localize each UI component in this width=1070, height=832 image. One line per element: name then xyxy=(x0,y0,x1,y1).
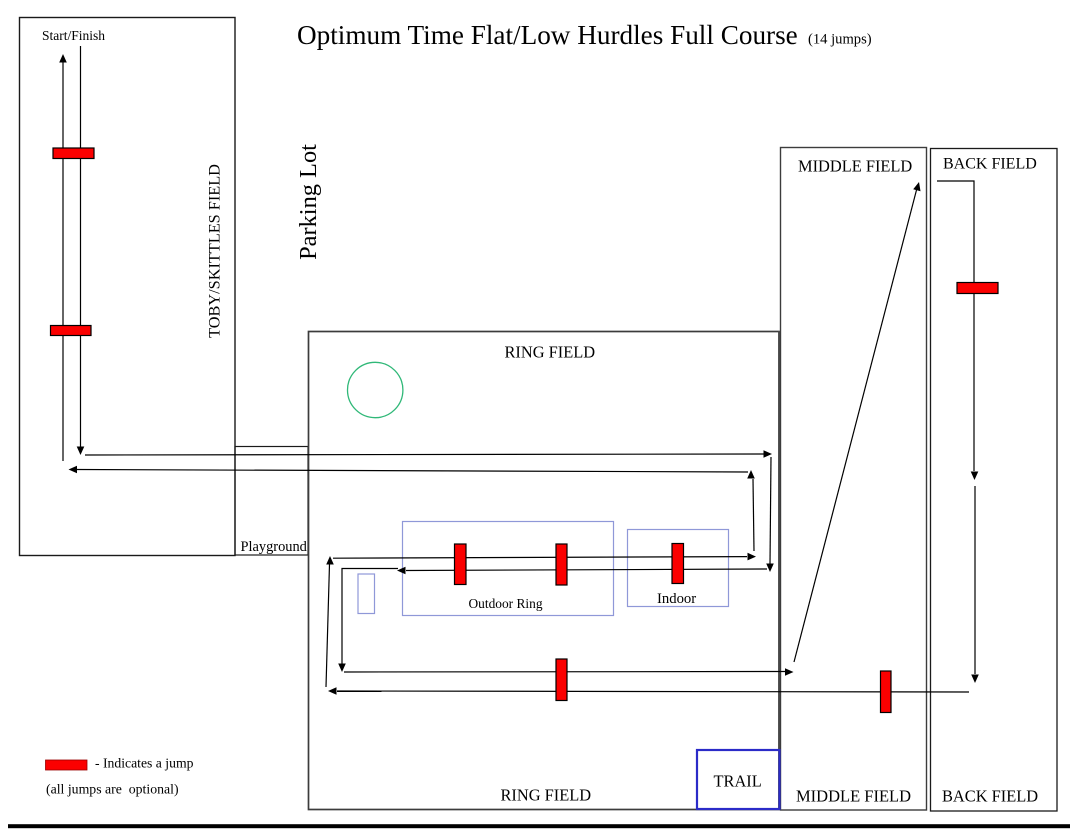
svg-text:Playground: Playground xyxy=(241,539,308,555)
svg-text:MIDDLE FIELD: MIDDLE FIELD xyxy=(798,157,912,176)
svg-text:Parking Lot: Parking Lot xyxy=(295,144,322,260)
svg-text:Start/Finish: Start/Finish xyxy=(42,28,105,43)
svg-text:(14 jumps): (14 jumps) xyxy=(808,32,872,48)
svg-text:- Indicates a jump: - Indicates a jump xyxy=(95,756,194,771)
svg-text:TRAIL: TRAIL xyxy=(714,772,762,791)
svg-text:TOBY/SKITTLES FIELD: TOBY/SKITTLES FIELD xyxy=(204,164,223,338)
svg-text:RING FIELD: RING FIELD xyxy=(505,343,596,362)
svg-text:Outdoor Ring: Outdoor Ring xyxy=(469,596,543,611)
svg-text:Indoor: Indoor xyxy=(657,591,696,607)
svg-text:Optimum Time Flat/Low Hurdles: Optimum Time Flat/Low Hurdles Full Cours… xyxy=(297,20,798,50)
svg-text:RING FIELD: RING FIELD xyxy=(501,786,592,805)
svg-text:BACK FIELD: BACK FIELD xyxy=(942,787,1038,806)
svg-text:BACK FIELD: BACK FIELD xyxy=(943,156,1037,173)
svg-text:MIDDLE FIELD: MIDDLE FIELD xyxy=(796,787,911,806)
svg-text:(all jumps are optional): (all jumps are optional) xyxy=(46,782,179,798)
